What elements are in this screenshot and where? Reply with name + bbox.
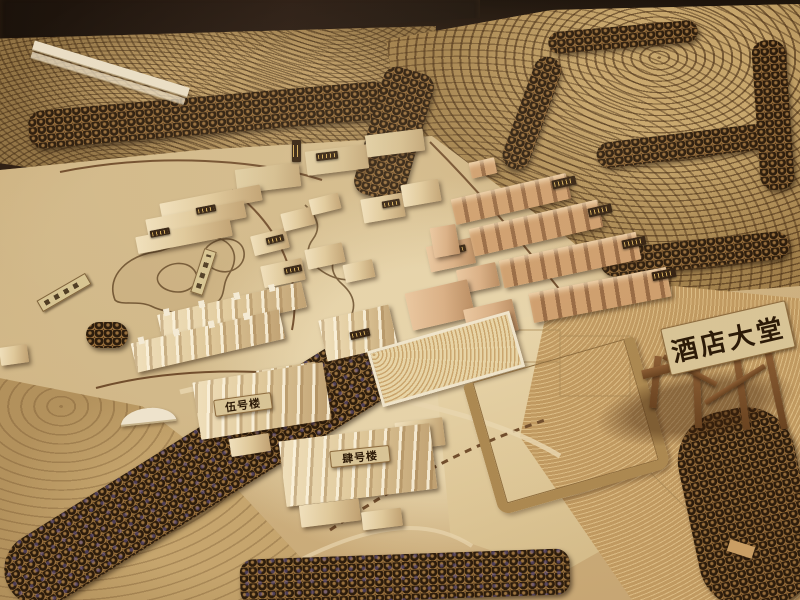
tree-clump <box>86 322 128 348</box>
building-four-sign-text: 肆号楼 <box>341 447 378 467</box>
model-photo: 伍号楼 肆号楼 酒店大堂 <box>0 0 800 600</box>
model-building <box>430 224 461 258</box>
building-plaque <box>292 140 301 162</box>
